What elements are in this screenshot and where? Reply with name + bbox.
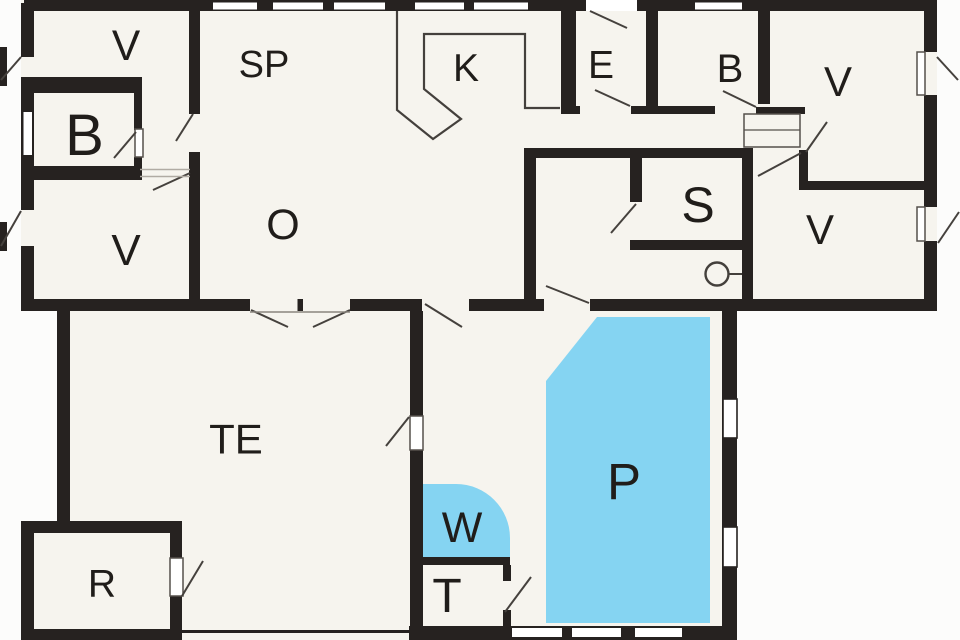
svg-text:K: K	[453, 47, 479, 90]
svg-text:B: B	[717, 47, 744, 91]
svg-text:O: O	[266, 201, 299, 249]
svg-text:V: V	[112, 23, 141, 70]
svg-text:R: R	[88, 563, 116, 606]
svg-text:V: V	[824, 58, 852, 105]
svg-text:TE: TE	[209, 416, 263, 463]
svg-text:S: S	[681, 177, 714, 233]
svg-text:B: B	[65, 103, 104, 168]
svg-text:E: E	[588, 44, 614, 87]
svg-text:V: V	[111, 226, 141, 275]
svg-text:W: W	[442, 504, 483, 552]
svg-text:SP: SP	[239, 44, 290, 86]
svg-text:V: V	[806, 206, 834, 253]
svg-text:T: T	[432, 570, 461, 623]
svg-text:P: P	[607, 453, 641, 510]
